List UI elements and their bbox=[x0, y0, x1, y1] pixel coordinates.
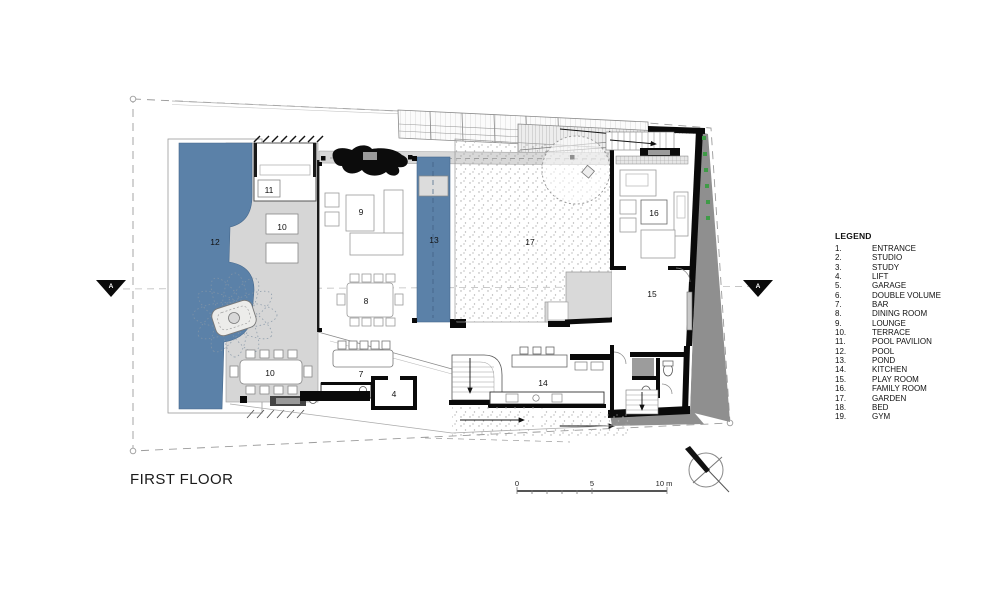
stairs-top bbox=[606, 132, 674, 150]
room-label-17: 17 bbox=[525, 237, 535, 247]
page-title: FIRST FLOOR bbox=[130, 471, 233, 488]
room-label-11: 11 bbox=[265, 185, 274, 195]
scale-start-label: 0 bbox=[515, 479, 519, 488]
main-building bbox=[606, 126, 730, 426]
legend-item: 12.POOL bbox=[835, 347, 990, 356]
room-label-13: 13 bbox=[429, 235, 439, 245]
legend-item: 4.LIFT bbox=[835, 272, 990, 281]
legend-item: 6.DOUBLE VOLUME bbox=[835, 291, 990, 300]
legend-item: 13.POND bbox=[835, 356, 990, 365]
legend-item: 18.BED bbox=[835, 403, 990, 412]
room-label-9: 9 bbox=[359, 207, 364, 217]
legend-item: 17.GARDEN bbox=[835, 394, 990, 403]
tree bbox=[542, 136, 610, 204]
legend-item: 2.STUDIO bbox=[835, 253, 990, 262]
room-label-15: 15 bbox=[647, 289, 657, 299]
legend-item: 7.BAR bbox=[835, 300, 990, 309]
room-label-14: 14 bbox=[538, 378, 548, 388]
legend-item: 3.STUDY bbox=[835, 263, 990, 272]
legend: LEGEND 1.ENTRANCE 2.STUDIO 3.STUDY 4.LIF… bbox=[835, 231, 990, 422]
pavilion-roof-ticks bbox=[254, 136, 323, 142]
room-label-12: 12 bbox=[210, 237, 220, 247]
stairs-bottom bbox=[626, 390, 658, 414]
legend-item: 1.ENTRANCE bbox=[835, 244, 990, 253]
room-label-4: 4 bbox=[392, 389, 397, 399]
scale-mid-label: 5 bbox=[590, 479, 594, 488]
legend-item: 19.GYM bbox=[835, 412, 990, 421]
room-label-16: 16 bbox=[649, 208, 659, 218]
legend-item: 14.KITCHEN bbox=[835, 365, 990, 374]
legend-item: 8.DINING ROOM bbox=[835, 309, 990, 318]
room-label-8: 8 bbox=[364, 296, 369, 306]
north-compass-icon bbox=[685, 446, 729, 492]
garden-area bbox=[452, 136, 630, 327]
legend-item: 11.POOL PAVILION bbox=[835, 337, 990, 346]
svg-text:A: A bbox=[109, 283, 114, 290]
svg-text:A: A bbox=[756, 283, 761, 290]
room-label-10-upper: 10 bbox=[277, 222, 287, 232]
scale-end-label: 10 m bbox=[656, 479, 673, 488]
scale-bar: 0 5 10 m bbox=[515, 479, 672, 494]
floor-plan-page: 12 11 10 9 8 13 17 16 15 10 7 14 4 A A 0 bbox=[0, 0, 1000, 606]
legend-item: 9.LOUNGE bbox=[835, 319, 990, 328]
legend-item: 5.GARAGE bbox=[835, 281, 990, 290]
legend-item: 16.FAMILY ROOM bbox=[835, 384, 990, 393]
section-marker-left: A bbox=[96, 280, 126, 297]
section-marker-right: A bbox=[743, 280, 773, 297]
legend-header: LEGEND bbox=[835, 231, 990, 241]
room-label-10-lower: 10 bbox=[265, 368, 275, 378]
sculptural-sofa bbox=[333, 145, 408, 175]
entrance-path bbox=[452, 407, 630, 438]
legend-item: 10.TERRACE bbox=[835, 328, 990, 337]
room-label-7: 7 bbox=[359, 369, 364, 379]
legend-item: 15.PLAY ROOM bbox=[835, 375, 990, 384]
